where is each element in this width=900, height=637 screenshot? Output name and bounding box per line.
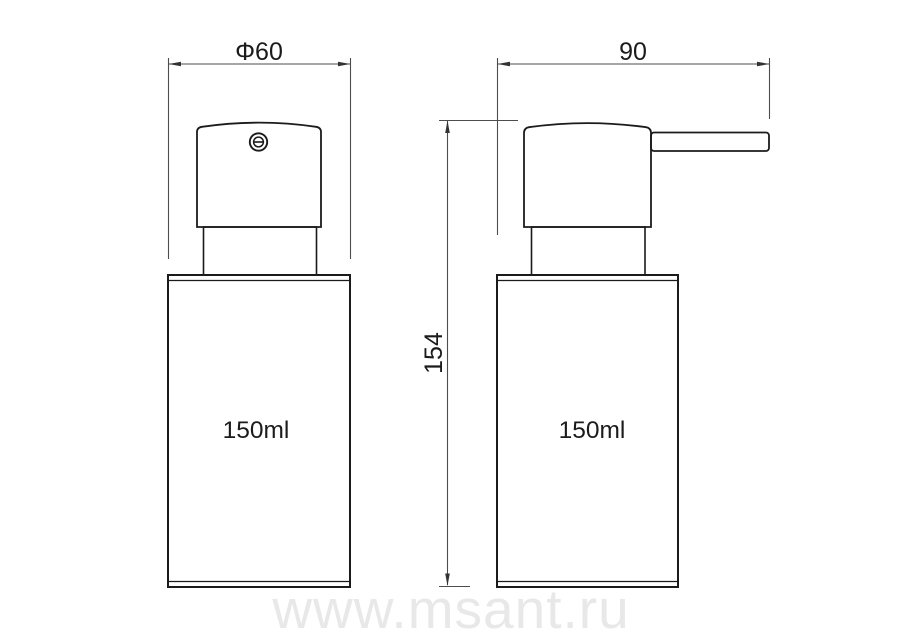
arrowhead-right-icon [338,62,351,67]
bottle-body-front: 150ml [168,275,350,587]
arrowhead-top-icon [445,121,450,134]
front-diameter-dimension: Φ60 [169,38,351,259]
arrowhead-left-icon [169,62,182,67]
bottle-body-side: 150ml [497,275,678,587]
side-view: 90 154 150ml [420,38,770,587]
side-height-dimension: 154 [420,121,518,587]
arrowhead-right-icon [757,62,770,67]
dispenser-drawing: www.msant.ru Φ60 150ml [0,0,900,637]
diameter-dimension-label: Φ60 [235,38,283,66]
width-dimension-label: 90 [619,38,647,66]
arrowhead-left-icon [498,62,511,67]
height-dimension-label: 154 [420,332,448,374]
pump-spout-side [651,133,769,152]
side-width-dimension: 90 [498,38,770,235]
capacity-label-side: 150ml [559,417,626,444]
pump-head-front [197,123,321,227]
pump-head-side [524,123,651,227]
capacity-label-front: 150ml [223,417,290,444]
pump-neck-side [532,227,646,275]
pump-outlet-icon [250,133,267,150]
front-view: Φ60 150ml [168,38,351,587]
technical-drawing-page: www.msant.ru Φ60 150ml [0,0,900,637]
pump-neck-front [204,227,317,275]
